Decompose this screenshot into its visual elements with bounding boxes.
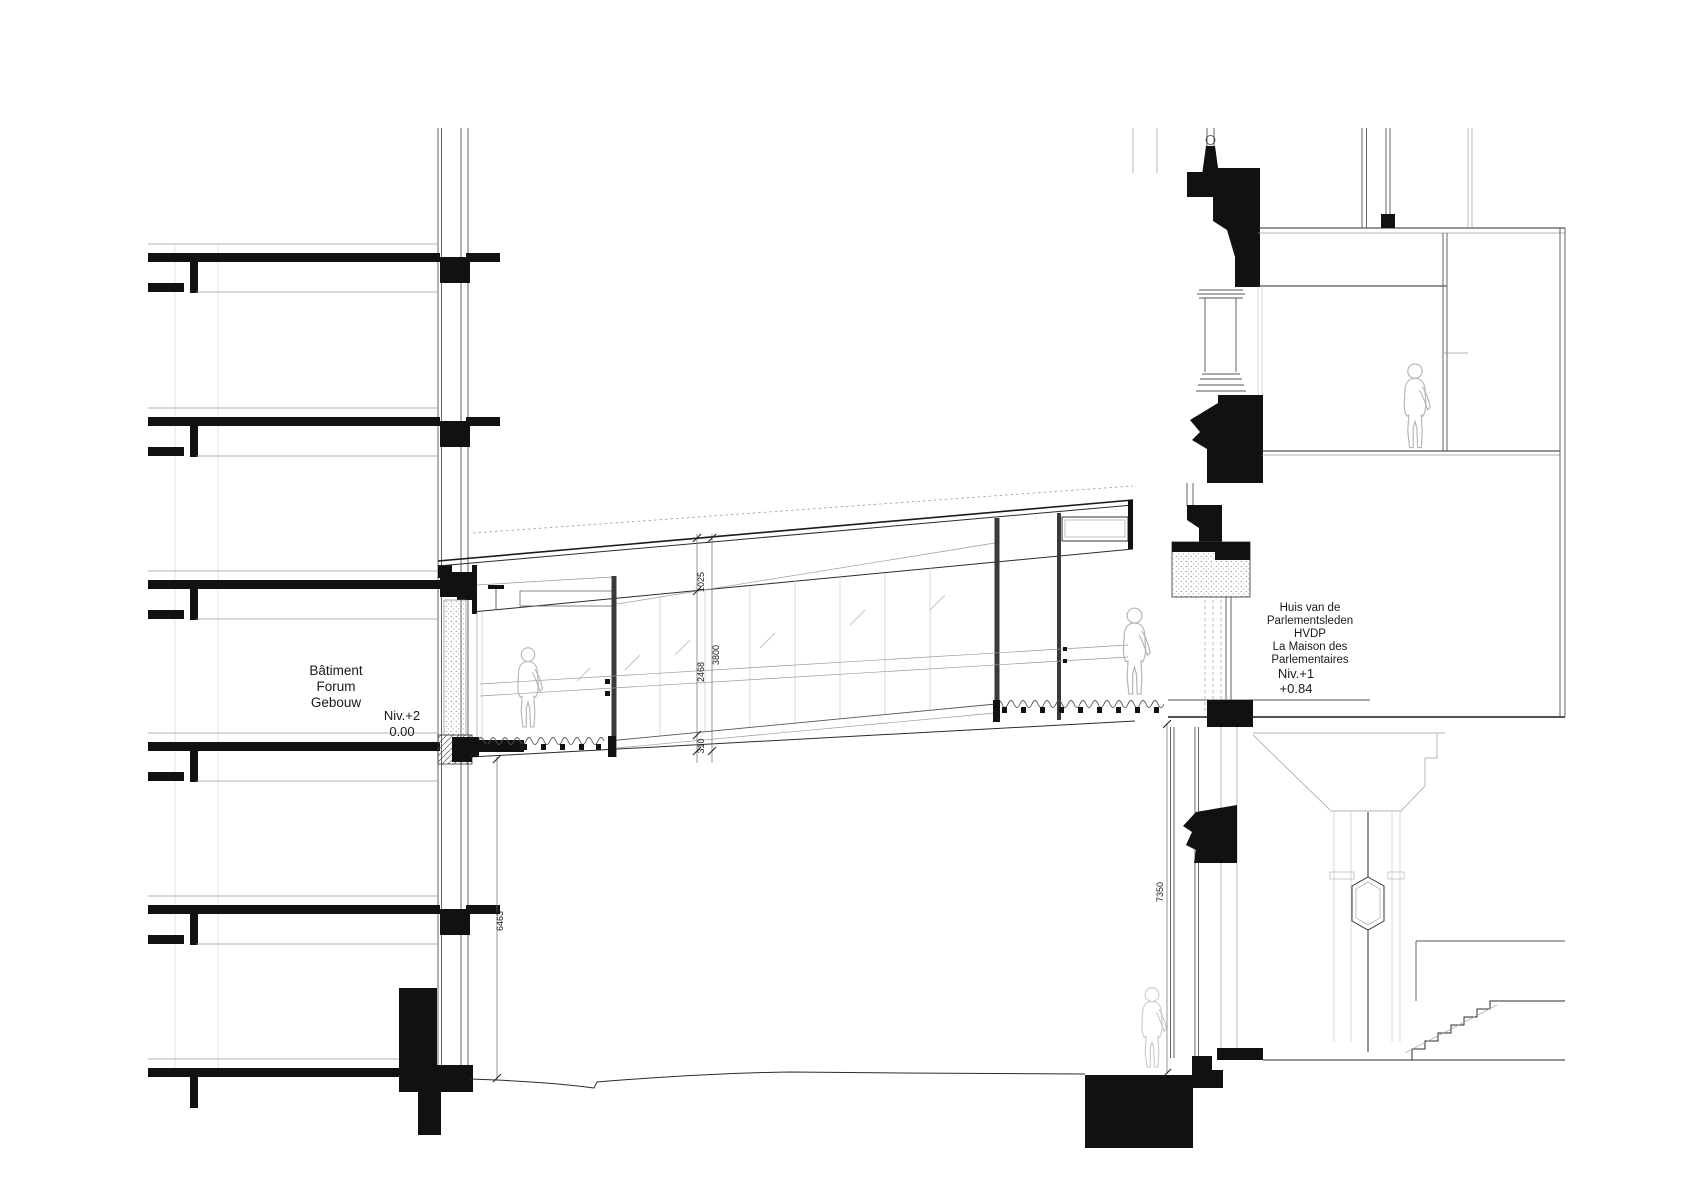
dim-overall-height: 3800 xyxy=(711,645,721,665)
right-building-name-2: Parlementsleden xyxy=(1267,615,1353,627)
floor-slab-level-5 xyxy=(148,408,500,457)
floor-slab-level-2 xyxy=(148,896,500,945)
left-level-value: 0.00 xyxy=(389,724,414,739)
left-level-label: Niv.+2 xyxy=(384,708,420,723)
floor-slab-level-3-bridge xyxy=(148,733,440,782)
dim-roof-band: 1025 xyxy=(696,572,706,592)
dim-left-clearance: 6463 xyxy=(495,911,505,931)
left-building-name-1: Bâtiment xyxy=(309,663,363,678)
ground-mass xyxy=(1085,1075,1193,1148)
terrain xyxy=(470,1072,1193,1148)
human-figures xyxy=(518,364,1430,1067)
left-building-name-2: Forum xyxy=(316,679,355,694)
right-building-name-4: La Maison des xyxy=(1273,641,1348,653)
left-building-forum xyxy=(148,128,524,1135)
deck-ribs-right xyxy=(1002,707,1159,713)
right-level-value: +0.84 xyxy=(1280,681,1313,696)
right-building-name-3: HVDP xyxy=(1294,628,1326,640)
section-drawing-page: 1025 2468 3800 310 6463 7350 Bâtiment Fo… xyxy=(0,0,1684,1191)
right-building-name-5: Parlementaires xyxy=(1271,654,1349,666)
figure-ground xyxy=(1142,988,1167,1067)
floor-slab-level-1 xyxy=(148,1059,440,1108)
floor-slab-level-6 xyxy=(148,244,500,293)
figure-bridge-right xyxy=(1123,608,1150,694)
right-level-label: Niv.+1 xyxy=(1278,666,1314,681)
figure-bridge-left xyxy=(518,648,543,727)
right-building-parliament xyxy=(1133,128,1565,1088)
glass-symbols xyxy=(577,595,945,681)
figure-upper-floor xyxy=(1404,364,1430,448)
left-foundation xyxy=(399,988,473,1135)
floor-slab-level-4 xyxy=(148,571,470,620)
pilaster xyxy=(1196,287,1262,395)
left-building-name-3: Gebouw xyxy=(311,695,362,710)
lower-hall xyxy=(1253,733,1565,1060)
right-building-name-1: Huis van de xyxy=(1280,602,1341,614)
dimension-chains: 1025 2468 3800 310 6463 7350 xyxy=(493,534,1171,1082)
dim-right-clearance: 7350 xyxy=(1155,882,1165,902)
dim-floor-depth: 310 xyxy=(696,738,706,753)
dim-glazing-height: 2468 xyxy=(696,662,706,682)
glazed-bridge xyxy=(438,486,1164,757)
section-drawing: 1025 2468 3800 310 6463 7350 Bâtiment Fo… xyxy=(0,0,1684,1191)
